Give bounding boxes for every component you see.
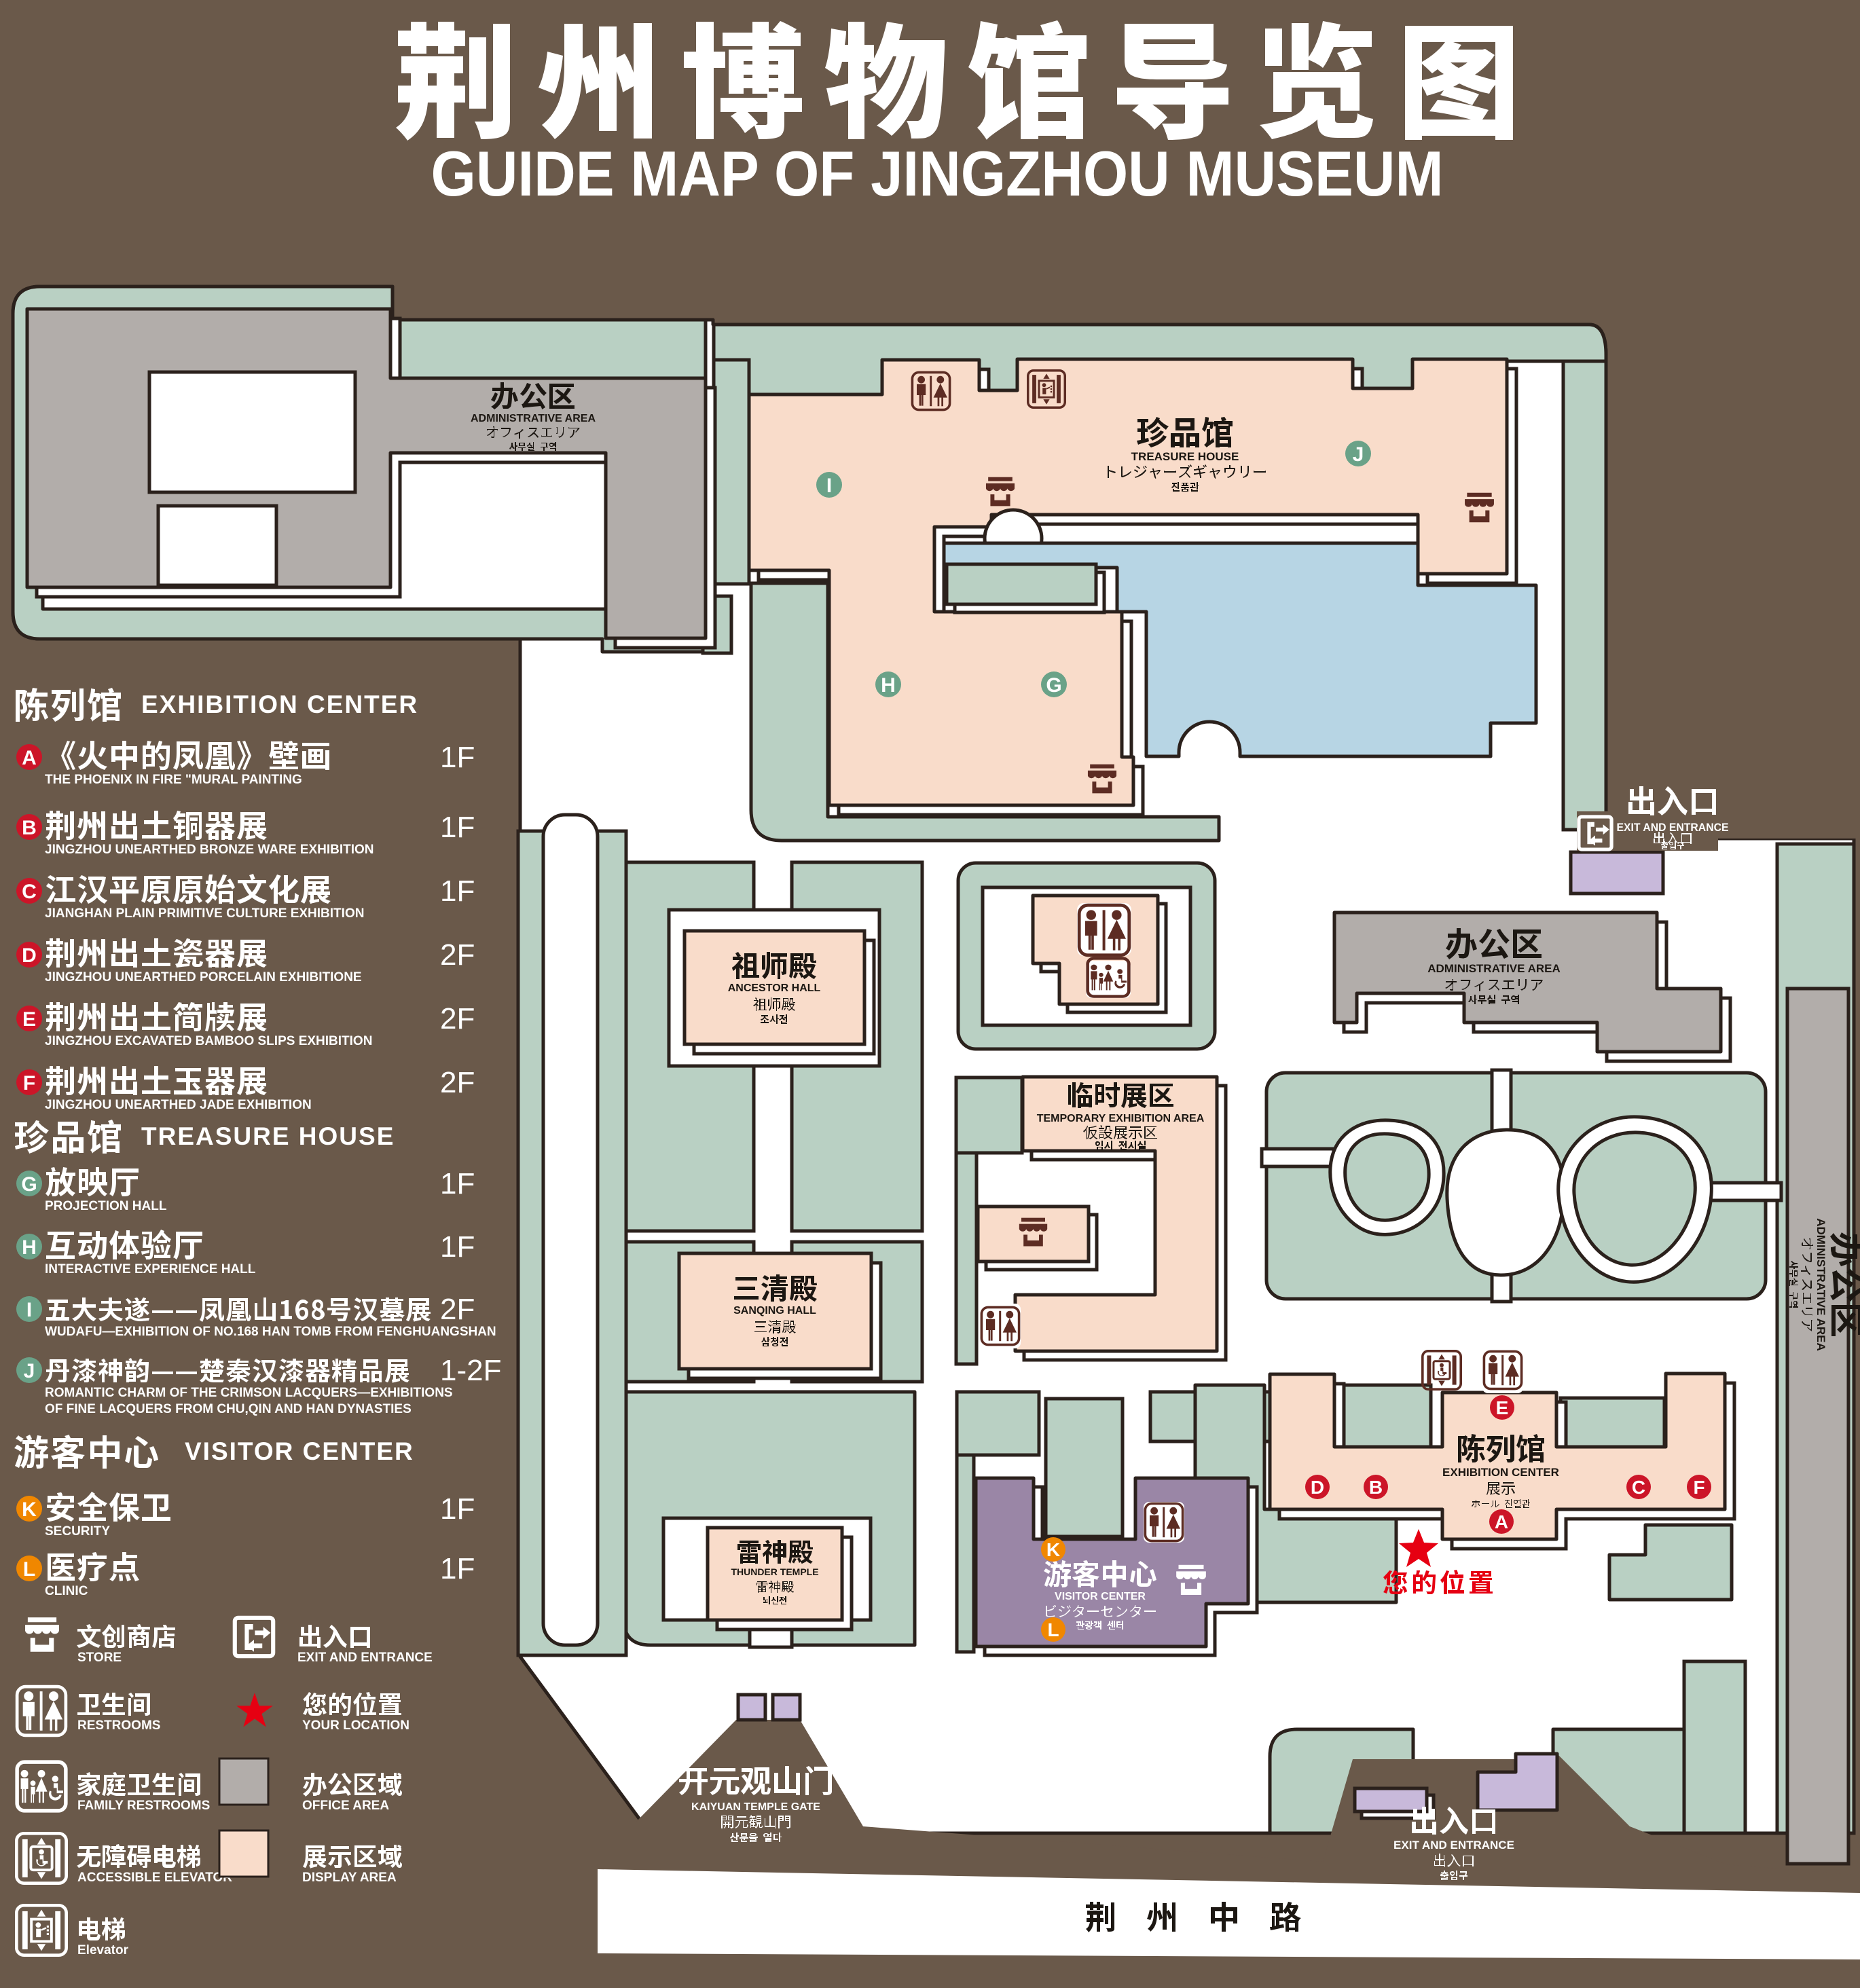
- svg-text:EXIT AND ENTRANCE: EXIT AND ENTRANCE: [1617, 821, 1729, 834]
- svg-text:G: G: [1046, 674, 1061, 697]
- svg-text:VISITOR CENTER: VISITOR CENTER: [1055, 1591, 1146, 1602]
- svg-text:OFFICE AREA: OFFICE AREA: [302, 1799, 389, 1813]
- svg-text:C: C: [22, 881, 37, 903]
- svg-text:ADMINISTRATIVE AREA: ADMINISTRATIVE AREA: [1815, 1218, 1827, 1351]
- svg-text:GUIDE MAP OF JINGZHOU MUSEUM: GUIDE MAP OF JINGZHOU MUSEUM: [431, 138, 1444, 209]
- svg-text:1F: 1F: [440, 1167, 475, 1200]
- svg-text:E: E: [22, 1008, 36, 1031]
- svg-text:G: G: [21, 1173, 37, 1196]
- svg-text:STORE: STORE: [77, 1651, 122, 1665]
- svg-text:F: F: [1693, 1477, 1704, 1498]
- svg-text:ANCESTOR HALL: ANCESTOR HALL: [728, 982, 821, 994]
- svg-text:H: H: [22, 1236, 37, 1259]
- svg-text:2F: 2F: [440, 1002, 475, 1035]
- svg-text:A: A: [1495, 1511, 1508, 1532]
- svg-text:OF FINE LACQUERS FROM CHU,QIN: OF FINE LACQUERS FROM CHU,QIN AND HAN DY…: [45, 1402, 412, 1416]
- svg-text:ADMINISTRATIVE AREA: ADMINISTRATIVE AREA: [1427, 962, 1561, 975]
- svg-text:EXIT AND ENTRANCE: EXIT AND ENTRANCE: [297, 1651, 433, 1665]
- svg-text:FAMILY RESTROOMS: FAMILY RESTROOMS: [77, 1799, 210, 1813]
- svg-text:1F: 1F: [440, 1552, 475, 1585]
- svg-text:J: J: [1353, 443, 1364, 466]
- svg-text:K: K: [22, 1498, 37, 1521]
- svg-text:1-2F: 1-2F: [440, 1354, 501, 1387]
- svg-text:2F: 2F: [440, 1293, 475, 1326]
- svg-text:JINGZHOU UNEARTHED BRONZE WARE: JINGZHOU UNEARTHED BRONZE WARE EXHIBITIO…: [45, 843, 374, 857]
- svg-text:ACCESSIBLE ELEVATOR: ACCESSIBLE ELEVATOR: [77, 1871, 232, 1885]
- svg-text:RESTROOMS: RESTROOMS: [77, 1718, 160, 1733]
- svg-text:1F: 1F: [440, 1230, 475, 1264]
- svg-text:B: B: [1369, 1477, 1383, 1498]
- svg-text:2F: 2F: [440, 938, 475, 972]
- svg-text:D: D: [22, 944, 37, 967]
- svg-text:L: L: [1047, 1619, 1059, 1640]
- svg-text:1F: 1F: [440, 811, 475, 844]
- svg-text:EXHIBITION CENTER: EXHIBITION CENTER: [141, 691, 418, 718]
- svg-text:Elevator: Elevator: [77, 1943, 129, 1957]
- svg-text:I: I: [26, 1299, 32, 1321]
- svg-text:INTERACTIVE EXPERIENCE HALL: INTERACTIVE EXPERIENCE HALL: [45, 1262, 256, 1276]
- svg-text:TREASURE HOUSE: TREASURE HOUSE: [1131, 450, 1239, 463]
- svg-text:EXHIBITION CENTER: EXHIBITION CENTER: [1442, 1466, 1559, 1479]
- svg-text:1F: 1F: [440, 1492, 475, 1526]
- svg-text:E: E: [1496, 1397, 1509, 1418]
- svg-text:EXIT AND ENTRANCE: EXIT AND ENTRANCE: [1393, 1839, 1514, 1852]
- svg-text:THE PHOENIX IN FIRE "MURAL PAI: THE PHOENIX IN FIRE "MURAL PAINTING: [45, 773, 302, 787]
- svg-text:THUNDER TEMPLE: THUNDER TEMPLE: [731, 1566, 818, 1577]
- svg-text:L: L: [23, 1558, 35, 1581]
- svg-text:D: D: [1311, 1477, 1324, 1498]
- svg-text:WUDAFU—EXHIBITION OF NO.168 HA: WUDAFU—EXHIBITION OF NO.168 HAN TOMB FRO…: [45, 1325, 496, 1339]
- svg-text:H: H: [881, 674, 896, 697]
- svg-text:1F: 1F: [440, 741, 475, 774]
- svg-text:J: J: [24, 1360, 35, 1382]
- svg-text:DISPLAY AREA: DISPLAY AREA: [302, 1871, 397, 1885]
- svg-text:TREASURE HOUSE: TREASURE HOUSE: [141, 1122, 395, 1150]
- svg-text:B: B: [22, 817, 37, 839]
- svg-text:2F: 2F: [440, 1066, 475, 1099]
- svg-text:I: I: [826, 475, 832, 497]
- svg-text:ADMINISTRATIVE AREA: ADMINISTRATIVE AREA: [471, 413, 596, 424]
- svg-text:KAIYUAN TEMPLE GATE: KAIYUAN TEMPLE GATE: [691, 1801, 820, 1813]
- svg-text:ROMANTIC CHARM OF THE CRIMSON: ROMANTIC CHARM OF THE CRIMSON LACQUERS—E…: [45, 1386, 453, 1400]
- svg-text:1F: 1F: [440, 875, 475, 908]
- svg-text:YOUR LOCATION: YOUR LOCATION: [302, 1718, 409, 1733]
- svg-text:JIANGHAN PLAIN PRIMITIVE CULTU: JIANGHAN PLAIN PRIMITIVE CULTURE EXHIBIT…: [45, 906, 364, 921]
- svg-text:SECURITY: SECURITY: [45, 1524, 110, 1539]
- svg-text:JINGZHOU EXCAVATED BAMBOO SLIP: JINGZHOU EXCAVATED BAMBOO SLIPS EXHIBITI…: [45, 1034, 372, 1048]
- svg-text:JINGZHOU UNEARTHED PORCELAIN E: JINGZHOU UNEARTHED PORCELAIN EXHIBITIONE: [45, 970, 362, 984]
- svg-text:TEMPORARY EXHIBITION AREA: TEMPORARY EXHIBITION AREA: [1037, 1113, 1205, 1124]
- svg-text:VISITOR CENTER: VISITOR CENTER: [185, 1437, 414, 1465]
- svg-text:C: C: [1632, 1477, 1645, 1498]
- svg-text:JINGZHOU UNEARTHED JADE EXHIBI: JINGZHOU UNEARTHED JADE EXHIBITION: [45, 1098, 312, 1112]
- svg-text:CLINIC: CLINIC: [45, 1584, 88, 1598]
- svg-text:K: K: [1046, 1539, 1060, 1560]
- svg-text:SANQING HALL: SANQING HALL: [733, 1305, 816, 1317]
- svg-text:F: F: [23, 1072, 35, 1094]
- svg-text:A: A: [22, 747, 37, 769]
- svg-text:PROJECTION HALL: PROJECTION HALL: [45, 1199, 167, 1213]
